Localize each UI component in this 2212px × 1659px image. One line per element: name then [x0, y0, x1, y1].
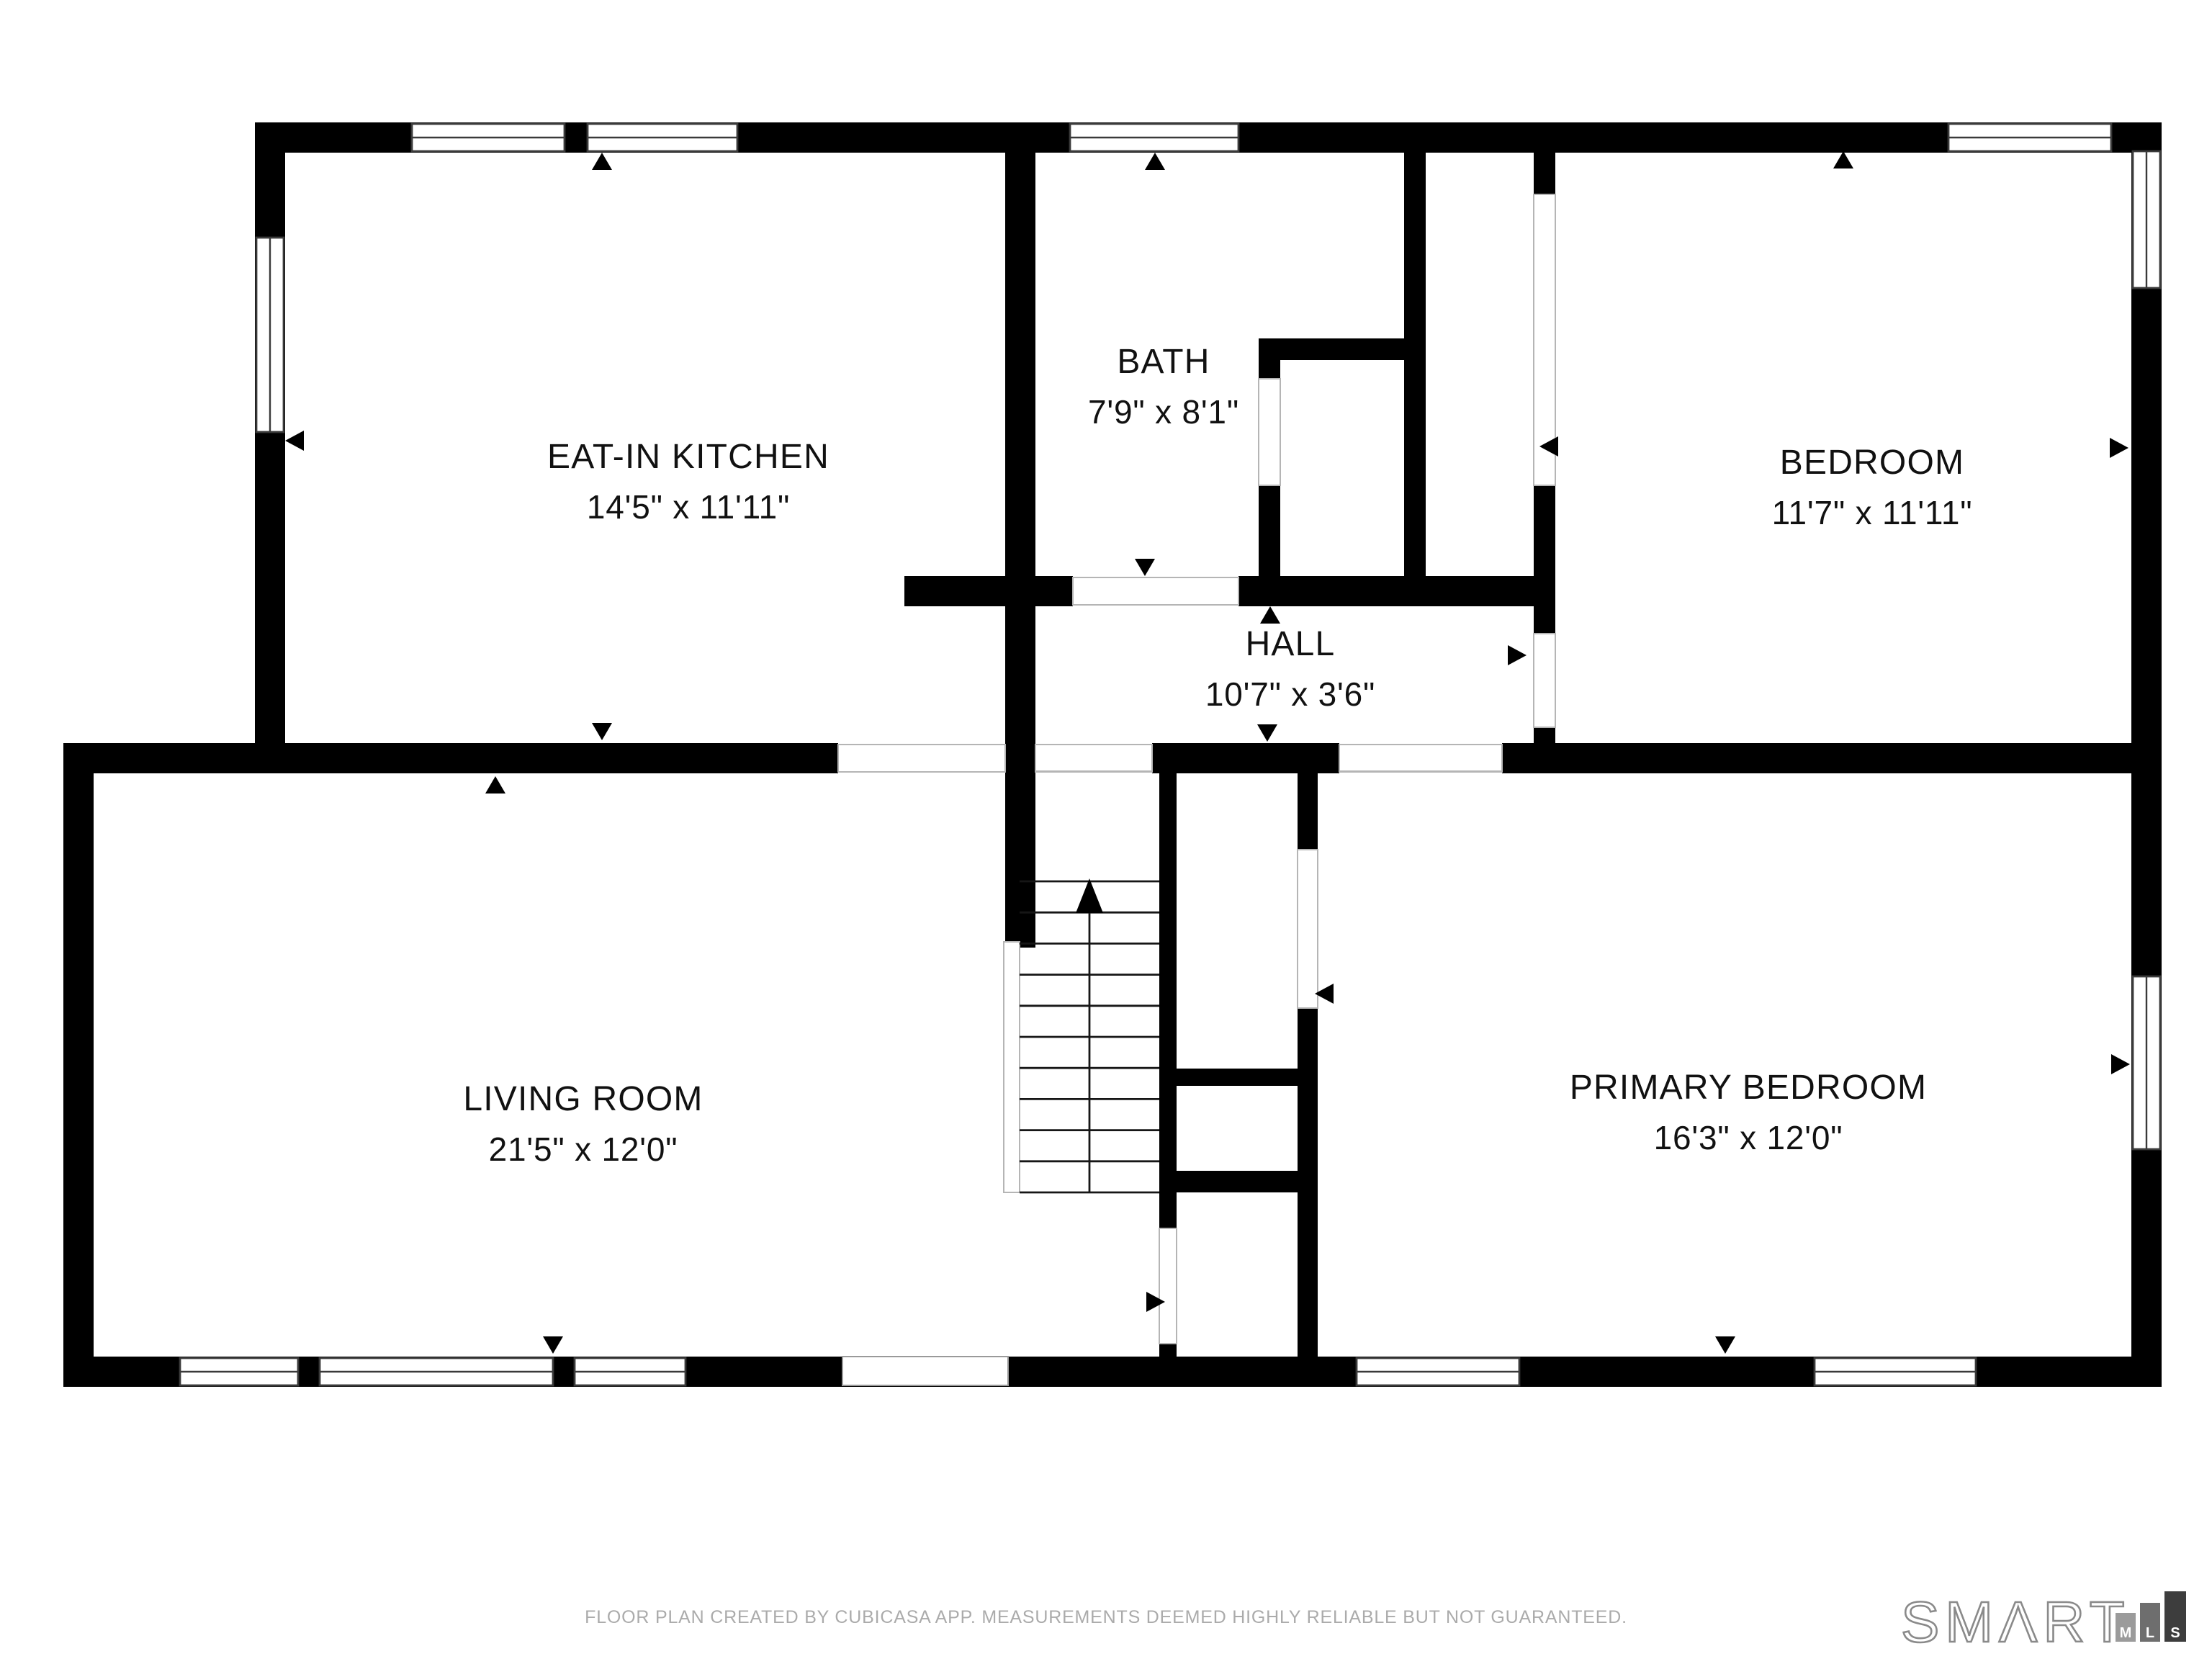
arrow-down-icon	[592, 723, 612, 740]
footer-disclaimer: FLOOR PLAN CREATED BY CUBICASA APP. MEAS…	[0, 1607, 2212, 1627]
arrow-up-icon	[592, 153, 612, 170]
room-label-kitchen: EAT-IN KITCHEN 14'5" x 11'11"	[547, 433, 829, 531]
mls-letter-m: M	[2120, 1625, 2132, 1641]
room-dimensions: 10'7" x 3'6"	[1205, 670, 1375, 719]
arrow-up-icon	[485, 776, 505, 793]
arrow-down-icon	[1257, 724, 1277, 742]
room-dimensions: 21'5" x 12'0"	[463, 1125, 703, 1174]
floor-plan-page: EAT-IN KITCHEN 14'5" x 11'11" BATH 7'9" …	[0, 0, 2212, 1659]
room-name: PRIMARY BEDROOM	[1570, 1064, 1927, 1113]
mls-letter-l: L	[2146, 1625, 2154, 1641]
room-dimensions: 7'9" x 8'1"	[1088, 387, 1239, 436]
room-label-bath: BATH 7'9" x 8'1"	[1088, 338, 1239, 436]
room-label-living-room: LIVING ROOM 21'5" x 12'0"	[463, 1076, 703, 1174]
mls-letter-s: S	[2170, 1625, 2180, 1641]
room-label-hall: HALL 10'7" x 3'6"	[1205, 621, 1375, 719]
arrow-right-icon	[1508, 645, 1527, 665]
room-label-primary-bedroom: PRIMARY BEDROOM 16'3" x 12'0"	[1570, 1064, 1927, 1162]
floor-plan-drawing	[0, 0, 2212, 1659]
room-dimensions: 11'7" x 11'11"	[1772, 488, 1973, 537]
room-name: HALL	[1205, 621, 1375, 670]
room-dimensions: 16'3" x 12'0"	[1570, 1113, 1927, 1162]
stair-treads	[1020, 881, 1159, 1192]
room-name: BATH	[1088, 338, 1239, 387]
arrow-left-icon	[285, 431, 304, 451]
arrow-right-icon	[2111, 1054, 2130, 1074]
room-name: BEDROOM	[1772, 439, 1973, 488]
smart-logo-text: SMΛRT	[1901, 1590, 2131, 1654]
arrow-up-icon	[1145, 153, 1165, 170]
room-dimensions: 14'5" x 11'11"	[547, 482, 829, 531]
arrow-down-icon	[1135, 559, 1155, 576]
arrow-down-icon	[543, 1336, 563, 1354]
room-name: EAT-IN KITCHEN	[547, 433, 829, 482]
room-label-bedroom: BEDROOM 11'7" x 11'11"	[1772, 439, 1973, 537]
arrow-up-icon	[1833, 151, 1853, 168]
stairs-up-arrow-icon	[1076, 878, 1103, 913]
smartmls-logo: SMΛRT M L S	[1898, 1577, 2200, 1656]
room-name: LIVING ROOM	[463, 1076, 703, 1125]
arrow-right-icon	[2110, 438, 2128, 458]
arrow-down-icon	[1715, 1336, 1735, 1354]
